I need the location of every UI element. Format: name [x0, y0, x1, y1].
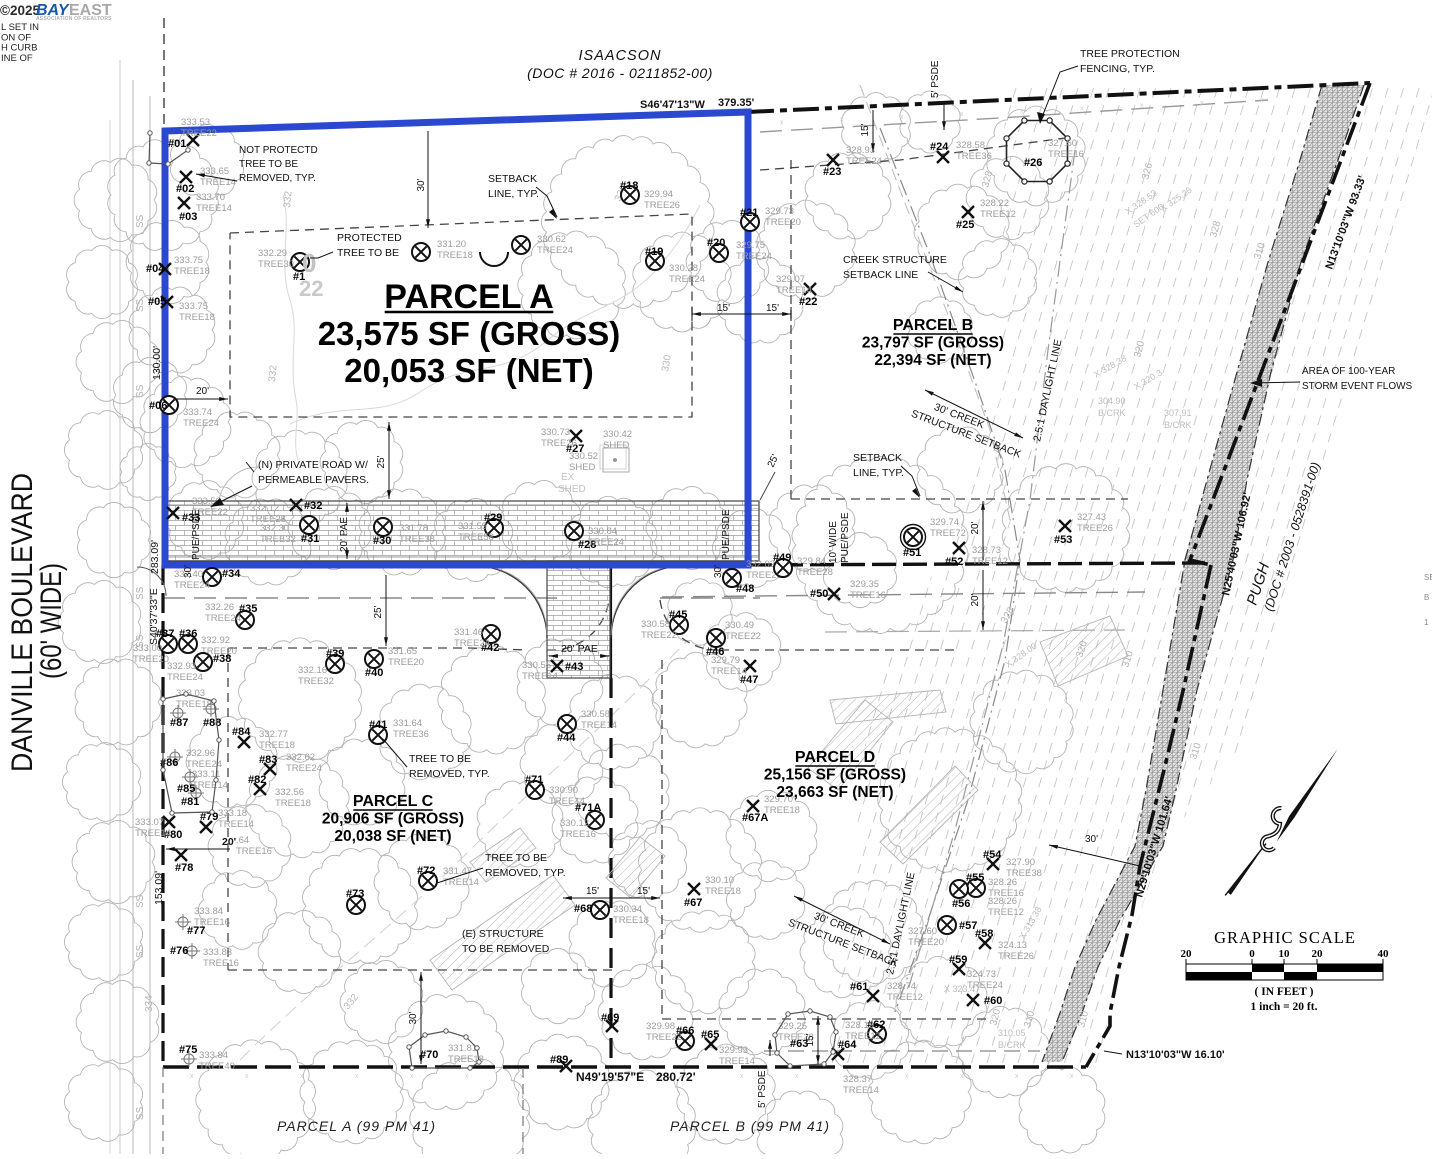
svg-text:TREE26: TREE26 — [541, 438, 577, 449]
svg-text:#81: #81 — [181, 796, 199, 808]
svg-text:ISAACSON: ISAACSON — [579, 48, 662, 64]
svg-text:x: x — [905, 1073, 909, 1080]
svg-text:#89: #89 — [550, 1054, 568, 1066]
svg-text:332.77: 332.77 — [259, 729, 288, 740]
svg-text:x: x — [190, 1073, 194, 1080]
svg-text:TREE14: TREE14 — [200, 177, 236, 188]
svg-text:#82: #82 — [248, 774, 266, 786]
svg-text:324.13: 324.13 — [998, 940, 1027, 951]
svg-text:©2025: ©2025 — [0, 3, 40, 18]
svg-text:25,156 SF (GROSS): 25,156 SF (GROSS) — [764, 767, 906, 784]
svg-text:PUE/PSDE: PUE/PSDE — [191, 509, 202, 560]
svg-text:#05: #05 — [148, 296, 166, 308]
svg-text:#06: #06 — [149, 400, 167, 412]
svg-text:20,038 SF (NET): 20,038 SF (NET) — [334, 828, 451, 845]
svg-text:#71: #71 — [525, 774, 543, 786]
svg-text:#02: #02 — [176, 183, 194, 195]
svg-text:#25: #25 — [956, 219, 974, 231]
svg-text:#50: #50 — [810, 588, 828, 600]
svg-text:332.29: 332.29 — [258, 248, 287, 259]
svg-text:329.73: 329.73 — [765, 206, 794, 217]
svg-text:(E) STRUCTURE: (E) STRUCTURE — [462, 928, 544, 940]
svg-text:#04: #04 — [146, 263, 165, 275]
svg-text:x: x — [1260, 97, 1264, 104]
svg-text:TREE18: TREE18 — [613, 915, 649, 926]
svg-text:330.58: 330.58 — [581, 709, 610, 720]
svg-text:(DOC # 2016 - 0211852-00): (DOC # 2016 - 0211852-00) — [527, 65, 713, 81]
svg-text:TO BE REMOVED: TO BE REMOVED — [462, 943, 550, 955]
svg-text:TREE14: TREE14 — [196, 203, 232, 214]
svg-text:330.58: 330.58 — [641, 619, 670, 630]
svg-text:40: 40 — [1378, 948, 1390, 960]
svg-text:TREE18: TREE18 — [174, 266, 210, 277]
svg-text:333.75: 333.75 — [179, 301, 208, 312]
svg-text:330.42: 330.42 — [603, 429, 632, 440]
svg-text:#84: #84 — [232, 726, 251, 738]
svg-text:SE: SE — [1424, 573, 1432, 582]
svg-text:#35: #35 — [239, 603, 257, 615]
svg-text:TREE14: TREE14 — [218, 819, 254, 830]
svg-text:#20: #20 — [707, 237, 725, 249]
svg-text:N49'19'57"E: N49'19'57"E — [576, 1070, 644, 1084]
svg-text:25': 25' — [373, 605, 384, 618]
svg-text:153.09': 153.09' — [153, 871, 165, 905]
svg-text:23,797 SF (GROSS): 23,797 SF (GROSS) — [862, 335, 1004, 352]
svg-text:330.73: 330.73 — [541, 427, 570, 438]
svg-text:#19: #19 — [645, 246, 663, 258]
svg-text:#36: #36 — [179, 628, 197, 640]
svg-text:328.73: 328.73 — [972, 545, 1001, 556]
svg-text:B/CRK: B/CRK — [1164, 420, 1192, 430]
svg-text:333.07: 333.07 — [135, 817, 164, 828]
svg-text:CREEK STRUCTURE: CREEK STRUCTURE — [843, 254, 947, 266]
svg-text:331.46: 331.46 — [454, 627, 483, 638]
svg-text:TREE72: TREE72 — [930, 528, 966, 539]
svg-text:x: x — [780, 120, 784, 127]
svg-text:N13'10'03"W 16.10': N13'10'03"W 16.10' — [1126, 1049, 1225, 1061]
svg-text:REMOVED, TYP.: REMOVED, TYP. — [409, 768, 490, 780]
svg-text:330.34: 330.34 — [613, 904, 642, 915]
svg-text:x: x — [900, 114, 904, 121]
svg-text:328.93: 328.93 — [846, 145, 875, 156]
svg-text:#55: #55 — [966, 872, 984, 884]
svg-text:328.58: 328.58 — [956, 140, 985, 151]
svg-text:331.64: 331.64 — [393, 718, 422, 729]
svg-text:#54: #54 — [983, 849, 1002, 861]
svg-text:TREE24: TREE24 — [454, 638, 490, 649]
svg-text:#44: #44 — [557, 732, 576, 744]
svg-text:330.12: 330.12 — [560, 818, 589, 829]
svg-text:x: x — [1080, 106, 1084, 113]
svg-text:TREE TO BE: TREE TO BE — [239, 159, 298, 170]
svg-text:TREE20: TREE20 — [388, 657, 424, 668]
svg-text:330.10: 330.10 — [705, 875, 734, 886]
svg-text:SS: SS — [135, 1106, 146, 1120]
svg-text:ASSOCIATION OF REALTORS: ASSOCIATION OF REALTORS — [36, 16, 112, 22]
svg-text:#75: #75 — [179, 1044, 197, 1056]
svg-text:332.93: 332.93 — [167, 661, 196, 672]
svg-text:PARCEL D: PARCEL D — [795, 749, 875, 766]
svg-text:20,053 SF (NET): 20,053 SF (NET) — [344, 352, 593, 389]
svg-text:TREE16: TREE16 — [194, 917, 230, 928]
svg-text:LINE, TYP.: LINE, TYP. — [488, 188, 539, 200]
svg-text:#49: #49 — [773, 552, 791, 564]
svg-text:#03: #03 — [179, 211, 197, 223]
svg-text:332: 332 — [267, 364, 279, 382]
svg-text:328.74: 328.74 — [887, 981, 916, 992]
svg-text:TREE24: TREE24 — [174, 580, 210, 591]
svg-text:328.26: 328.26 — [988, 877, 1017, 888]
svg-text:#87: #87 — [170, 717, 188, 729]
svg-text:#22: #22 — [799, 296, 817, 308]
svg-text:SS: SS — [135, 214, 146, 228]
svg-text:SS: SS — [135, 586, 146, 600]
svg-text:329.75: 329.75 — [736, 240, 765, 251]
svg-text:TREE18: TREE18 — [705, 886, 741, 897]
svg-text:332.12: 332.12 — [250, 503, 279, 514]
svg-text:#71A: #71A — [575, 802, 601, 814]
svg-text:333.84: 333.84 — [199, 1050, 228, 1061]
svg-text:TREE14: TREE14 — [719, 1056, 755, 1067]
svg-text:x: x — [410, 1073, 414, 1080]
svg-text:330.84: 330.84 — [588, 526, 617, 537]
svg-text:#30: #30 — [373, 535, 391, 547]
svg-text:25': 25' — [376, 455, 387, 468]
svg-text:TREE18: TREE18 — [259, 740, 295, 751]
svg-text:#61: #61 — [850, 981, 868, 993]
svg-text:329.07: 329.07 — [776, 274, 805, 285]
svg-text:TREE24: TREE24 — [846, 156, 882, 167]
svg-text:INE OF: INE OF — [1, 53, 33, 64]
svg-text:#76: #76 — [170, 945, 188, 957]
svg-text:PERMEABLE PAVERS.: PERMEABLE PAVERS. — [258, 474, 369, 486]
svg-text:327.43: 327.43 — [1077, 512, 1106, 523]
svg-text:PROTECTED: PROTECTED — [337, 232, 402, 244]
svg-text:22: 22 — [299, 276, 323, 301]
svg-text:AREA OF 100-YEAR: AREA OF 100-YEAR — [1302, 366, 1395, 377]
svg-text:22,394 SF (NET): 22,394 SF (NET) — [874, 352, 991, 369]
svg-text:TREE18: TREE18 — [437, 250, 473, 261]
svg-text:TREE24: TREE24 — [588, 537, 624, 548]
svg-text:PARCEL B (99 PM 41): PARCEL B (99 PM 41) — [670, 1118, 830, 1134]
svg-text:#65: #65 — [701, 1029, 719, 1041]
svg-text:TREE22: TREE22 — [725, 631, 761, 642]
svg-text:#24: #24 — [930, 141, 949, 153]
svg-text:#01: #01 — [168, 138, 186, 150]
svg-text:130.00': 130.00' — [151, 346, 163, 380]
svg-text:PARCEL A: PARCEL A — [384, 278, 553, 316]
svg-text:#52: #52 — [945, 556, 963, 568]
svg-text:333.84: 333.84 — [194, 906, 223, 917]
svg-text:#41: #41 — [369, 719, 387, 731]
svg-text:#59: #59 — [949, 954, 967, 966]
svg-text:TREE32: TREE32 — [260, 534, 296, 545]
svg-text:PUE/PSDE: PUE/PSDE — [721, 509, 732, 560]
svg-text:20' PAE: 20' PAE — [561, 643, 598, 655]
svg-text:x: x — [300, 1073, 304, 1080]
svg-text:333.53: 333.53 — [181, 117, 210, 128]
svg-text:x: x — [1015, 1073, 1019, 1080]
svg-text:333.70: 333.70 — [196, 192, 225, 203]
svg-text:REMOVED, TYP.: REMOVED, TYP. — [485, 867, 566, 879]
svg-text:TREE38: TREE38 — [399, 534, 435, 545]
svg-text:SETBACK LINE: SETBACK LINE — [843, 269, 918, 281]
svg-text:329.94: 329.94 — [644, 189, 673, 200]
svg-text:#39: #39 — [326, 648, 344, 660]
svg-text:TREE PROTECTION: TREE PROTECTION — [1080, 48, 1180, 60]
svg-text:TREE20: TREE20 — [908, 937, 944, 948]
svg-text:329.93: 329.93 — [719, 1045, 748, 1056]
svg-text:#67: #67 — [684, 897, 702, 909]
svg-text:TREE22: TREE22 — [646, 1032, 682, 1043]
svg-text:332.16: 332.16 — [298, 665, 327, 676]
svg-text:TREE14: TREE14 — [843, 1085, 879, 1096]
svg-text:332.02: 332.02 — [746, 559, 775, 570]
svg-text:x: x — [1140, 103, 1144, 110]
svg-text:EX: EX — [561, 472, 575, 483]
svg-text:15': 15' — [586, 886, 599, 897]
svg-text:#69: #69 — [601, 1012, 619, 1024]
svg-text:TREE24: TREE24 — [669, 274, 705, 285]
svg-text:TREE20: TREE20 — [765, 217, 801, 228]
svg-text:x: x — [1320, 94, 1324, 101]
svg-text:x: x — [355, 1073, 359, 1080]
svg-text:TREE32: TREE32 — [298, 676, 334, 687]
svg-text:379.35': 379.35' — [718, 97, 755, 109]
svg-text:332.56: 332.56 — [275, 787, 304, 798]
svg-text:10' WIDE: 10' WIDE — [828, 521, 839, 563]
svg-text:x: x — [740, 1073, 744, 1080]
svg-text:x: x — [520, 1073, 524, 1080]
svg-text:TREE12: TREE12 — [980, 209, 1016, 220]
svg-text:x: x — [1070, 1073, 1074, 1080]
svg-text:328.22: 328.22 — [980, 198, 1009, 209]
svg-text:TREE20: TREE20 — [133, 654, 169, 665]
svg-text:15': 15' — [766, 303, 779, 314]
svg-text:TREE12: TREE12 — [887, 992, 923, 1003]
svg-text:TREE36: TREE36 — [393, 729, 429, 740]
svg-text:327.50: 327.50 — [1048, 138, 1077, 149]
svg-text:307.91: 307.91 — [1164, 408, 1192, 418]
svg-text:PARCEL C: PARCEL C — [353, 793, 434, 810]
svg-text:20' PAE: 20' PAE — [339, 517, 350, 552]
svg-text:S40'37'33"E: S40'37'33"E — [148, 588, 160, 645]
svg-text:TREE12: TREE12 — [988, 907, 1024, 918]
svg-text:TREE14: TREE14 — [776, 285, 812, 296]
svg-text:20': 20' — [970, 593, 981, 606]
svg-text:NOT PROTECTD: NOT PROTECTD — [239, 145, 318, 156]
svg-text:331.59: 331.59 — [458, 521, 487, 532]
svg-text:333.18: 333.18 — [218, 808, 247, 819]
svg-text:333.83: 333.83 — [203, 947, 232, 958]
svg-text:TREE18: TREE18 — [275, 798, 311, 809]
svg-text:#18: #18 — [620, 180, 638, 192]
svg-text:#53: #53 — [1054, 534, 1072, 546]
svg-text:TREE24: TREE24 — [967, 980, 1003, 991]
svg-text:TREE TO BE: TREE TO BE — [409, 753, 471, 765]
svg-text:5' PSDE: 5' PSDE — [757, 1070, 768, 1108]
svg-text:#23: #23 — [823, 166, 841, 178]
svg-text:327.60: 327.60 — [908, 926, 937, 937]
svg-text:x: x — [795, 1073, 799, 1080]
svg-text:TREE26: TREE26 — [998, 951, 1034, 962]
svg-text:#60: #60 — [984, 995, 1002, 1007]
svg-text:#48: #48 — [736, 583, 754, 595]
svg-text:1 inch = 20 ft.: 1 inch = 20 ft. — [1251, 1001, 1318, 1013]
svg-text:#83: #83 — [259, 754, 277, 766]
svg-text:TREE16: TREE16 — [850, 590, 886, 601]
svg-text:TREE14: TREE14 — [443, 877, 479, 888]
svg-text:REMOVED, TYP.: REMOVED, TYP. — [239, 173, 316, 184]
svg-text:x: x — [840, 117, 844, 124]
svg-text:TREE16: TREE16 — [1048, 149, 1084, 160]
svg-text:#38: #38 — [213, 653, 231, 665]
svg-text:329.74: 329.74 — [930, 517, 959, 528]
svg-text:328.37: 328.37 — [843, 1074, 872, 1085]
svg-text:B/CRK: B/CRK — [998, 1040, 1026, 1050]
svg-text:#72: #72 — [417, 865, 435, 877]
svg-text:#78: #78 — [175, 862, 193, 874]
svg-text:15': 15' — [860, 123, 871, 136]
svg-text:30': 30' — [408, 1011, 419, 1024]
svg-text:TREE12: TREE12 — [972, 556, 1008, 567]
svg-text:SHED: SHED — [603, 440, 630, 451]
svg-text:#56: #56 — [952, 898, 970, 910]
svg-text:SS: SS — [135, 384, 146, 398]
svg-text:LINE, TYP.: LINE, TYP. — [853, 467, 904, 479]
svg-text:20': 20' — [970, 521, 981, 534]
svg-text:20: 20 — [1312, 948, 1324, 960]
svg-text:TREE14: TREE14 — [192, 780, 228, 791]
svg-text:#88: #88 — [203, 717, 221, 729]
svg-text:PARCEL A (99 PM 41): PARCEL A (99 PM 41) — [277, 1118, 436, 1134]
svg-text:TREE24: TREE24 — [167, 672, 203, 683]
svg-text:( IN FEET ): ( IN FEET ) — [1255, 986, 1314, 998]
svg-text:#21: #21 — [740, 207, 758, 219]
svg-text:15': 15' — [717, 303, 730, 314]
svg-text:331.65: 331.65 — [388, 646, 417, 657]
svg-text:23,575 SF (GROSS): 23,575 SF (GROSS) — [318, 315, 621, 352]
svg-text:(60' WIDE): (60' WIDE) — [35, 563, 68, 679]
svg-text:TREE14: TREE14 — [711, 666, 747, 677]
svg-text:TREE24: TREE24 — [736, 251, 772, 262]
svg-text:30': 30' — [416, 178, 427, 191]
svg-text:30': 30' — [713, 565, 724, 578]
svg-text:329.79: 329.79 — [711, 655, 740, 666]
svg-text:310.05: 310.05 — [998, 1028, 1026, 1038]
svg-text:TREE TO BE: TREE TO BE — [485, 852, 547, 864]
svg-text:#70: #70 — [420, 1049, 438, 1061]
svg-text:328.19: 328.19 — [845, 1020, 874, 1031]
svg-text:331.47: 331.47 — [443, 866, 472, 877]
svg-text:TREE16: TREE16 — [560, 829, 596, 840]
svg-text:20,906 SF (GROSS): 20,906 SF (GROSS) — [322, 811, 464, 828]
svg-text:TREE28: TREE28 — [797, 567, 833, 578]
svg-text:329.84: 329.84 — [797, 556, 826, 567]
svg-text:330.52: 330.52 — [569, 451, 598, 462]
svg-text:331.20: 331.20 — [437, 239, 466, 250]
svg-text:#32: #32 — [304, 500, 322, 512]
svg-text:333.75: 333.75 — [174, 255, 203, 266]
svg-text:S46'47'13"W: S46'47'13"W — [640, 99, 705, 111]
svg-text:TREE16: TREE16 — [236, 846, 272, 857]
svg-text:330.49: 330.49 — [725, 620, 754, 631]
svg-text:324.73: 324.73 — [967, 969, 996, 980]
svg-text:#68: #68 — [574, 903, 592, 915]
svg-text:TREE18: TREE18 — [179, 312, 215, 323]
svg-text:TREE24: TREE24 — [537, 245, 573, 256]
svg-text:328.26: 328.26 — [988, 896, 1017, 907]
svg-text:TREE18: TREE18 — [764, 805, 800, 816]
svg-text:TREE40: TREE40 — [199, 1061, 235, 1072]
svg-text:SETBACK: SETBACK — [853, 452, 902, 464]
svg-text:#73: #73 — [346, 888, 364, 900]
svg-text:#26: #26 — [1024, 157, 1042, 169]
svg-text:x: x — [1020, 108, 1024, 115]
svg-text:333.74: 333.74 — [183, 407, 212, 418]
svg-text:TREE14: TREE14 — [135, 828, 171, 839]
svg-text:TREE22: TREE22 — [181, 128, 217, 139]
svg-text:331.78: 331.78 — [399, 523, 428, 534]
svg-text:#40: #40 — [365, 667, 383, 679]
svg-text:283.09': 283.09' — [149, 540, 161, 574]
svg-text:B/CRK: B/CRK — [1098, 408, 1126, 418]
svg-text:x: x — [960, 111, 964, 118]
svg-text:330.90: 330.90 — [549, 785, 578, 796]
svg-text:327.90: 327.90 — [1006, 857, 1035, 868]
svg-text:332.92: 332.92 — [201, 635, 230, 646]
svg-text:TREE14: TREE14 — [522, 671, 558, 682]
svg-text:TREE14: TREE14 — [581, 720, 617, 731]
svg-text:PUE/PSDE: PUE/PSDE — [840, 512, 851, 563]
svg-text:x: x — [960, 1073, 964, 1080]
svg-text:1: 1 — [1424, 618, 1429, 627]
svg-text:SETBACK: SETBACK — [488, 173, 537, 185]
svg-text:TREE30: TREE30 — [258, 259, 294, 270]
svg-text:331.81: 331.81 — [448, 1043, 477, 1054]
svg-text:FENCING, TYP.: FENCING, TYP. — [1080, 63, 1155, 75]
svg-text:330.28: 330.28 — [669, 263, 698, 274]
svg-text:280.72': 280.72' — [656, 1070, 696, 1084]
svg-text:TREE28: TREE28 — [250, 514, 286, 525]
svg-text:TREE36: TREE36 — [956, 151, 992, 162]
svg-text:20: 20 — [1181, 948, 1193, 960]
svg-text:30': 30' — [1085, 834, 1098, 845]
svg-text:GRAPHIC SCALE: GRAPHIC SCALE — [1214, 928, 1356, 947]
svg-text:#45: #45 — [669, 609, 687, 621]
svg-text:x: x — [1200, 100, 1204, 107]
svg-text:332.26: 332.26 — [205, 602, 234, 613]
svg-text:x: x — [465, 1073, 469, 1080]
svg-text:15': 15' — [805, 1033, 816, 1046]
svg-text:0: 0 — [302, 248, 316, 278]
svg-text:#43: #43 — [565, 661, 583, 673]
svg-text:TREE26: TREE26 — [1077, 523, 1113, 534]
svg-text:TREE24: TREE24 — [183, 418, 219, 429]
svg-text:#64: #64 — [838, 1039, 857, 1051]
svg-text:TREE26: TREE26 — [644, 200, 680, 211]
svg-text:10: 10 — [1279, 948, 1291, 960]
svg-text:304.90: 304.90 — [1098, 396, 1126, 406]
svg-text:20': 20' — [222, 836, 236, 848]
svg-text:#51: #51 — [903, 547, 921, 559]
svg-text:(N) PRIVATE ROAD W/: (N) PRIVATE ROAD W/ — [258, 459, 368, 471]
svg-text:#31: #31 — [301, 533, 319, 545]
svg-text:330.62: 330.62 — [537, 234, 566, 245]
svg-text:15': 15' — [637, 886, 650, 897]
svg-text:STORM EVENT FLOWS: STORM EVENT FLOWS — [1302, 381, 1413, 392]
svg-text:TREE58: TREE58 — [458, 532, 494, 543]
